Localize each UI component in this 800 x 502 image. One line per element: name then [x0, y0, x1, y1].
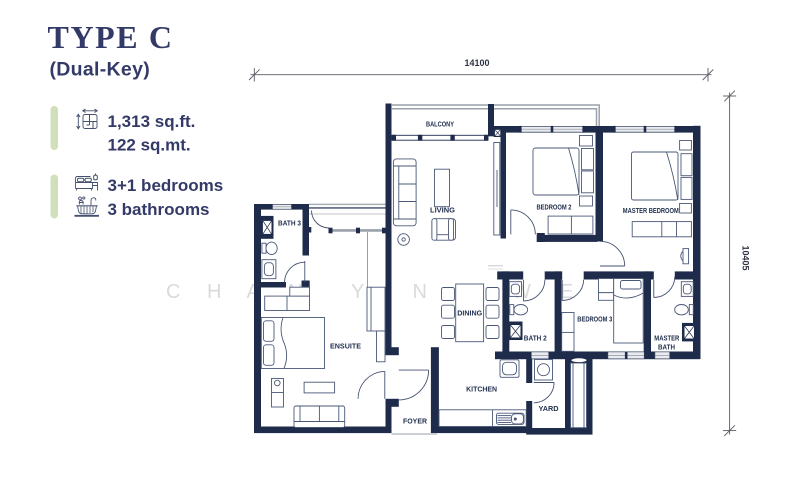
- svg-text:122 sq.mt.: 122 sq.mt.: [108, 136, 191, 155]
- svg-text:KITCHEN: KITCHEN: [466, 384, 497, 393]
- svg-text:DINING: DINING: [457, 309, 482, 318]
- svg-text:BEDROOM 2: BEDROOM 2: [537, 203, 572, 212]
- svg-text:TYPE C: TYPE C: [48, 19, 174, 55]
- svg-text:1,313 sq.ft.: 1,313 sq.ft.: [108, 112, 196, 131]
- svg-text:BATH 2: BATH 2: [524, 333, 547, 342]
- svg-text:BEDROOM 3: BEDROOM 3: [577, 315, 612, 324]
- svg-text:C: C: [166, 281, 180, 303]
- svg-text:FOYER: FOYER: [403, 416, 427, 425]
- svg-text:(Dual-Key): (Dual-Key): [50, 59, 151, 81]
- svg-text:10405: 10405: [741, 245, 751, 270]
- svg-text:H: H: [207, 281, 221, 303]
- svg-text:MASTER: MASTER: [654, 333, 679, 342]
- svg-text:3+1 bedrooms: 3+1 bedrooms: [108, 176, 224, 195]
- svg-text:Y: Y: [351, 281, 364, 303]
- svg-text:BATH: BATH: [658, 342, 675, 351]
- svg-text:LIVING: LIVING: [430, 205, 455, 214]
- svg-text:ENSUITE: ENSUITE: [330, 341, 361, 350]
- svg-text:14100: 14100: [464, 58, 489, 68]
- svg-text:BATH 3: BATH 3: [278, 218, 301, 227]
- svg-text:3 bathrooms: 3 bathrooms: [108, 200, 210, 219]
- svg-text:BALCONY: BALCONY: [426, 119, 454, 128]
- svg-text:MASTER BEDROOM: MASTER BEDROOM: [623, 206, 679, 215]
- svg-text:N: N: [413, 281, 427, 303]
- svg-text:YARD: YARD: [539, 404, 559, 413]
